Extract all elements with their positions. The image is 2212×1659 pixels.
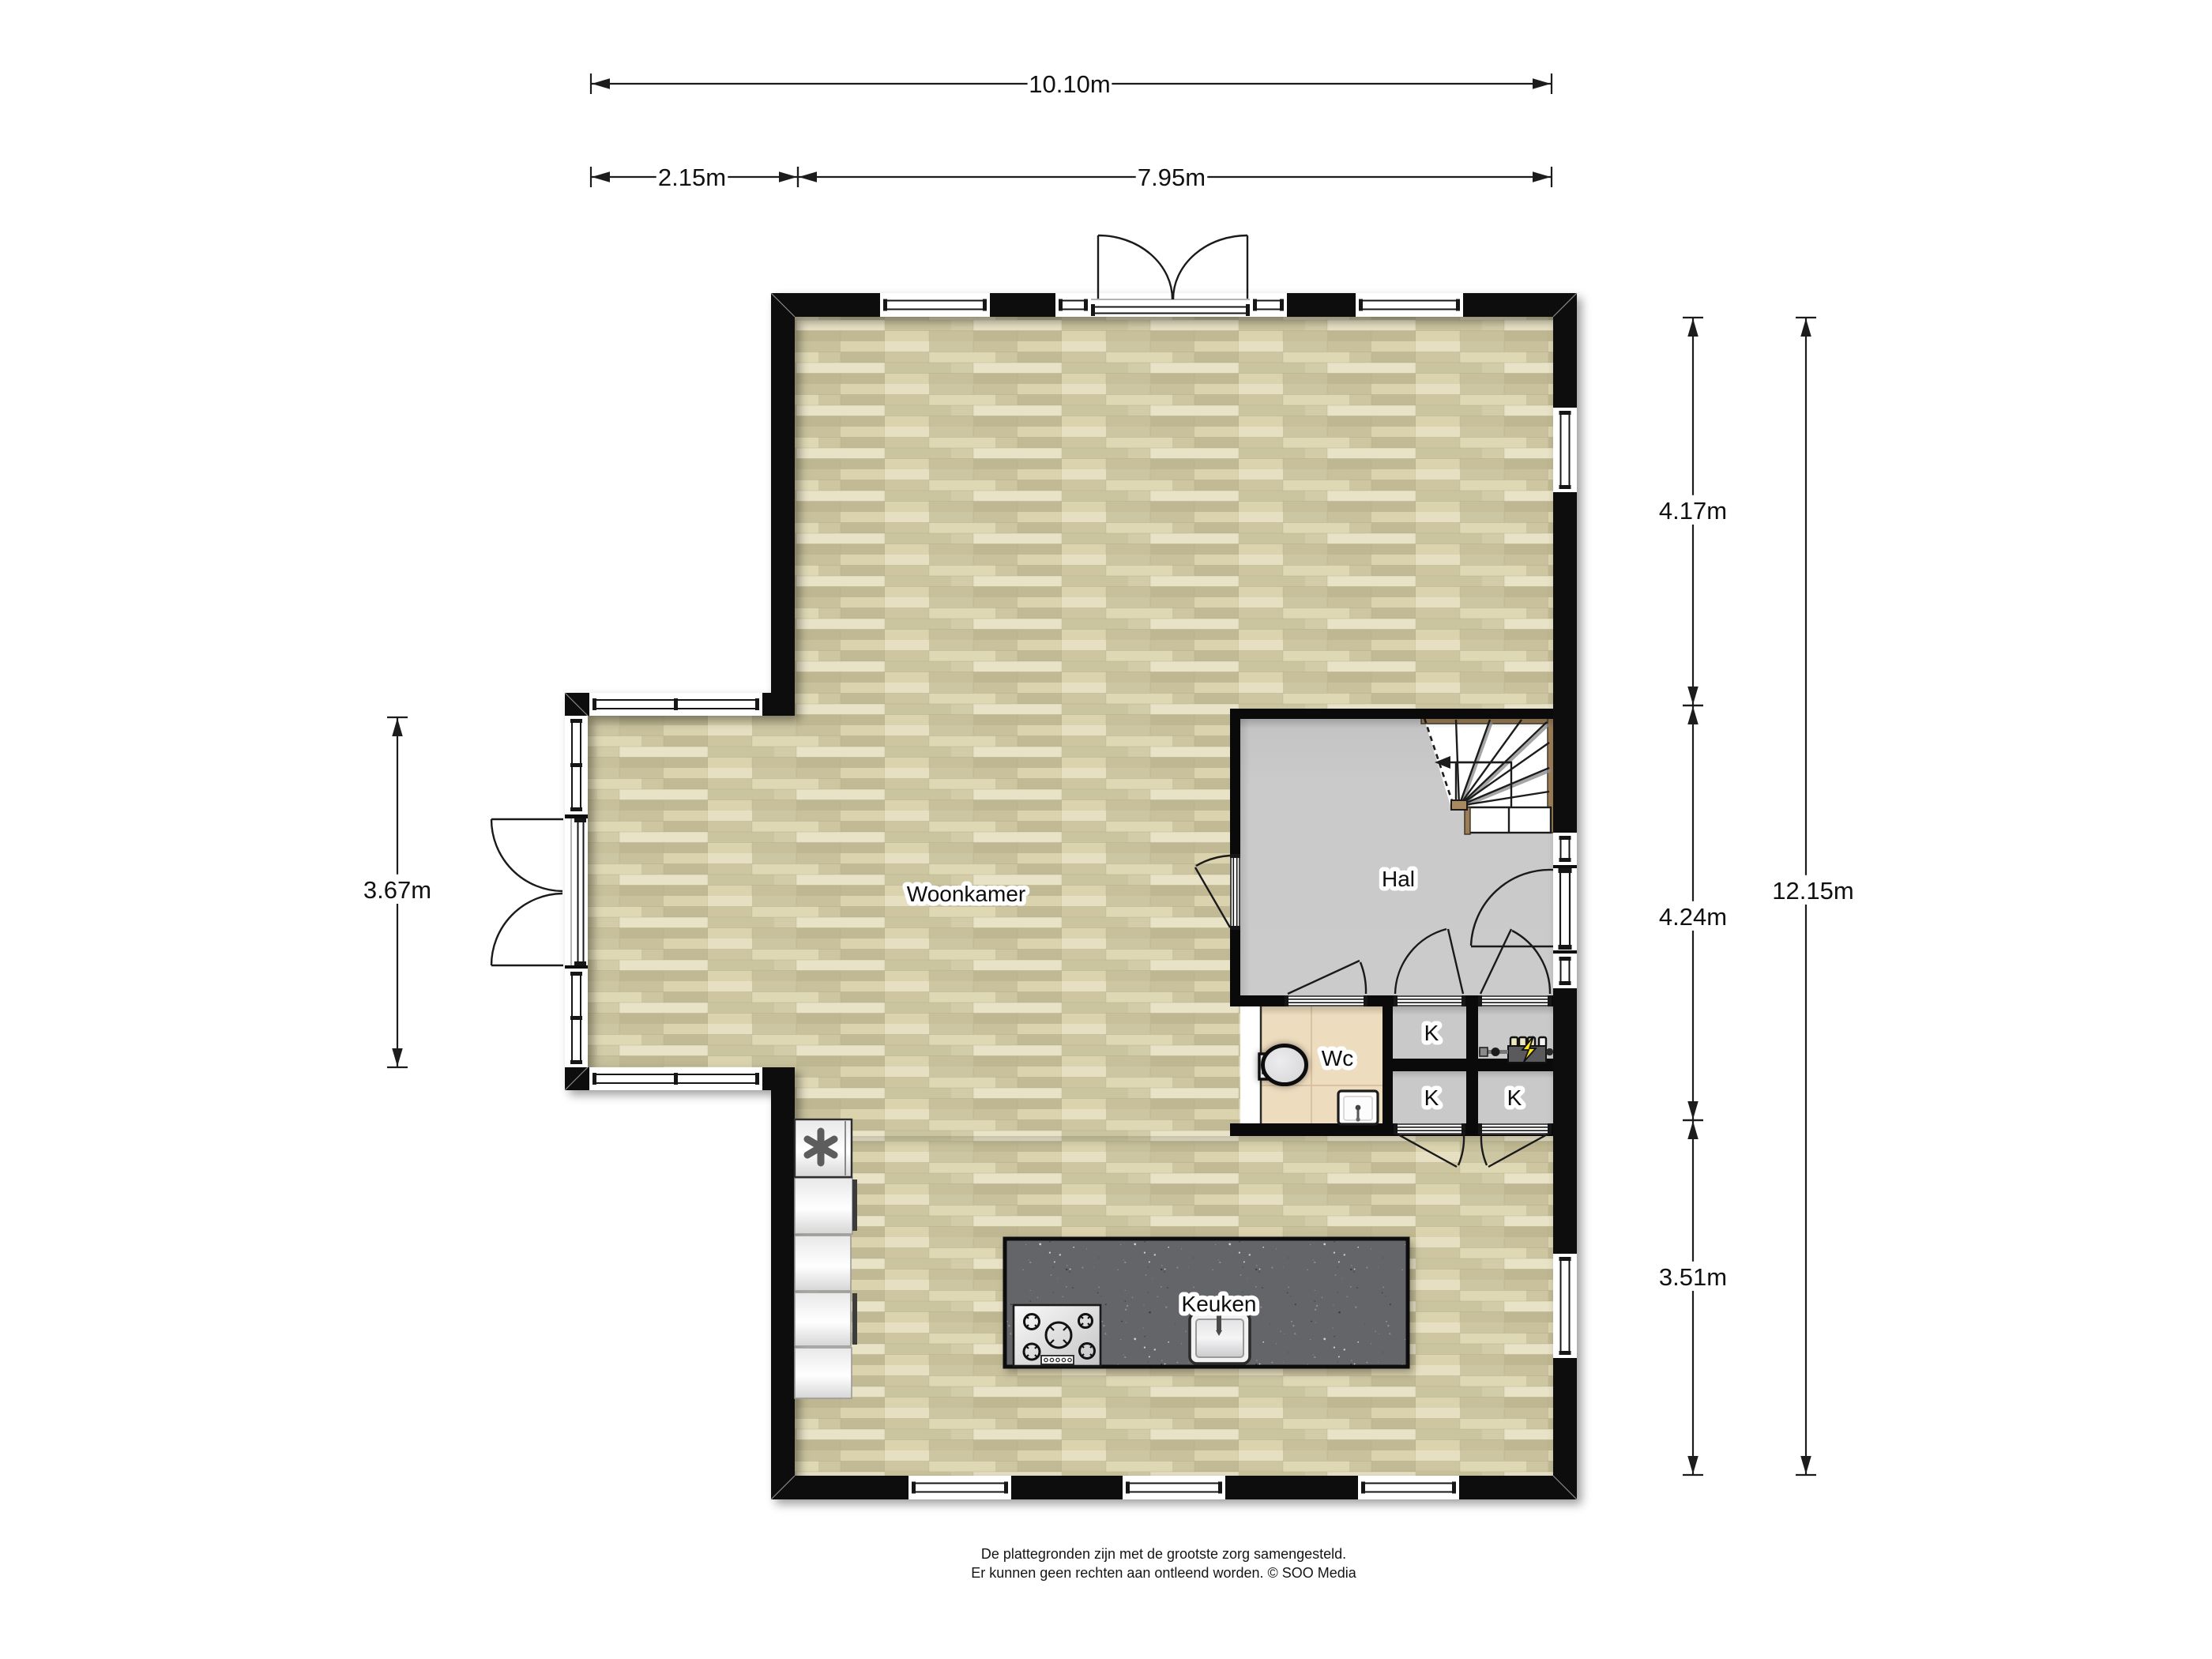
- svg-text:4.24m: 4.24m: [1659, 903, 1727, 931]
- svg-text:3.51m: 3.51m: [1659, 1263, 1727, 1291]
- svg-text:De plattegronden zijn met de g: De plattegronden zijn met de grootste zo…: [981, 1546, 1346, 1562]
- svg-text:4.17m: 4.17m: [1659, 497, 1727, 525]
- svg-text:7.95m: 7.95m: [1138, 164, 1206, 191]
- svg-text:Wc: Wc: [1322, 1046, 1353, 1070]
- svg-text:K: K: [1424, 1085, 1439, 1110]
- svg-text:10.10m: 10.10m: [1029, 70, 1110, 98]
- svg-text:Keuken: Keuken: [1182, 1292, 1257, 1316]
- svg-text:Er kunnen geen rechten aan ont: Er kunnen geen rechten aan ontleend word…: [971, 1565, 1357, 1581]
- svg-text:K: K: [1507, 1085, 1522, 1110]
- svg-text:Woonkamer: Woonkamer: [907, 882, 1025, 906]
- svg-text:K: K: [1424, 1021, 1439, 1045]
- svg-text:12.15m: 12.15m: [1772, 877, 1853, 905]
- svg-text:2.15m: 2.15m: [658, 164, 726, 191]
- svg-text:3.67m: 3.67m: [363, 876, 431, 904]
- svg-text:Hal: Hal: [1382, 867, 1415, 891]
